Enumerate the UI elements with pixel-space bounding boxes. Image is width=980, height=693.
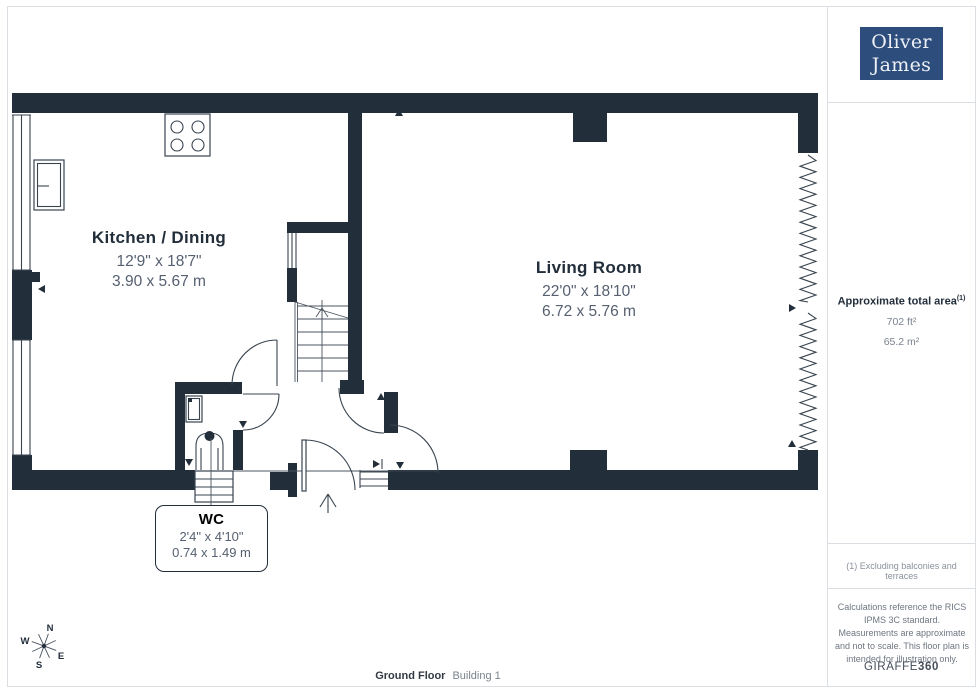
total-area-block: Approximate total area(1) 702 ft² 65.2 m… — [831, 295, 972, 348]
window-stairs — [288, 233, 296, 268]
compass-east-label: E — [58, 651, 64, 662]
agency-logo: Oliver James — [860, 27, 943, 80]
compass-west-label: W — [21, 636, 30, 647]
window-front-sidelight — [360, 470, 388, 488]
stove-icon — [165, 114, 210, 156]
agency-logo-line1: Oliver — [860, 31, 943, 54]
compass-rose-icon: N W E S — [21, 623, 65, 671]
wc-dimensions-imperial: 2'4" x 4'10" — [156, 529, 267, 545]
disclaimer-text: Calculations reference the RICS IPMS 3C … — [834, 601, 970, 666]
bifold-door-icon — [800, 155, 816, 450]
compass-south-label: S — [36, 660, 42, 671]
brand-name: GIRAFFE — [864, 661, 918, 673]
total-area-metric: 65.2 m² — [831, 336, 972, 348]
sidebar-divider-footnote-top — [827, 543, 976, 544]
agency-logo-line2: James — [860, 54, 943, 77]
kitchen-dimensions-metric: 3.90 x 5.67 m — [49, 272, 269, 292]
brand-number: 360 — [918, 661, 939, 673]
kitchen-dimensions-imperial: 12'9" x 18'7" — [49, 252, 269, 272]
window-left-lower — [12, 340, 31, 455]
stairs-icon — [295, 300, 348, 382]
living-dimensions-imperial: 22'0" x 18'10" — [479, 282, 699, 302]
window-left-upper — [12, 115, 31, 270]
floor-caption: Ground FloorBuilding 1 — [338, 670, 538, 682]
building-name: Building 1 — [452, 670, 500, 682]
kitchen-room-name: Kitchen / Dining — [49, 228, 269, 248]
giraffe360-brand: GIRAFFE360 — [831, 661, 972, 673]
door-arcs — [232, 340, 438, 491]
entrance-steps-icon — [195, 471, 233, 502]
toilet-icon — [196, 431, 223, 470]
total-area-imperial: 702 ft² — [831, 316, 972, 328]
wc-dimensions-metric: 0.74 x 1.49 m — [156, 545, 267, 561]
living-room-label: Living Room 22'0" x 18'10" 6.72 x 5.76 m — [479, 258, 699, 322]
sidebar-divider-vertical — [827, 6, 828, 687]
kitchen-dining-label: Kitchen / Dining 12'9" x 18'7" 3.90 x 5.… — [49, 228, 269, 292]
living-room-name: Living Room — [479, 258, 699, 278]
sidebar-divider-logo — [827, 102, 976, 103]
wc-label-box: WC 2'4" x 4'10" 0.74 x 1.49 m — [155, 505, 268, 572]
window-icons — [12, 115, 388, 488]
wc-sink-icon — [186, 396, 202, 422]
area-footnote: (1) Excluding balconies and terraces — [831, 561, 972, 581]
sidebar-divider-footnote-bottom — [827, 588, 976, 589]
total-area-label: Approximate total area(1) — [831, 295, 972, 308]
wc-room-name: WC — [156, 511, 267, 528]
floorplan-page: N W E S Kitchen / Dining 12'9" x 18'7" 3… — [0, 0, 980, 693]
living-dimensions-metric: 6.72 x 5.76 m — [479, 302, 699, 322]
compass-north-label: N — [47, 623, 54, 634]
kitchen-sink-icon — [34, 160, 64, 210]
floor-name: Ground Floor — [375, 670, 445, 682]
area-footnote-reference: (1) — [957, 295, 966, 302]
entrance-arrow-icon — [320, 494, 336, 513]
